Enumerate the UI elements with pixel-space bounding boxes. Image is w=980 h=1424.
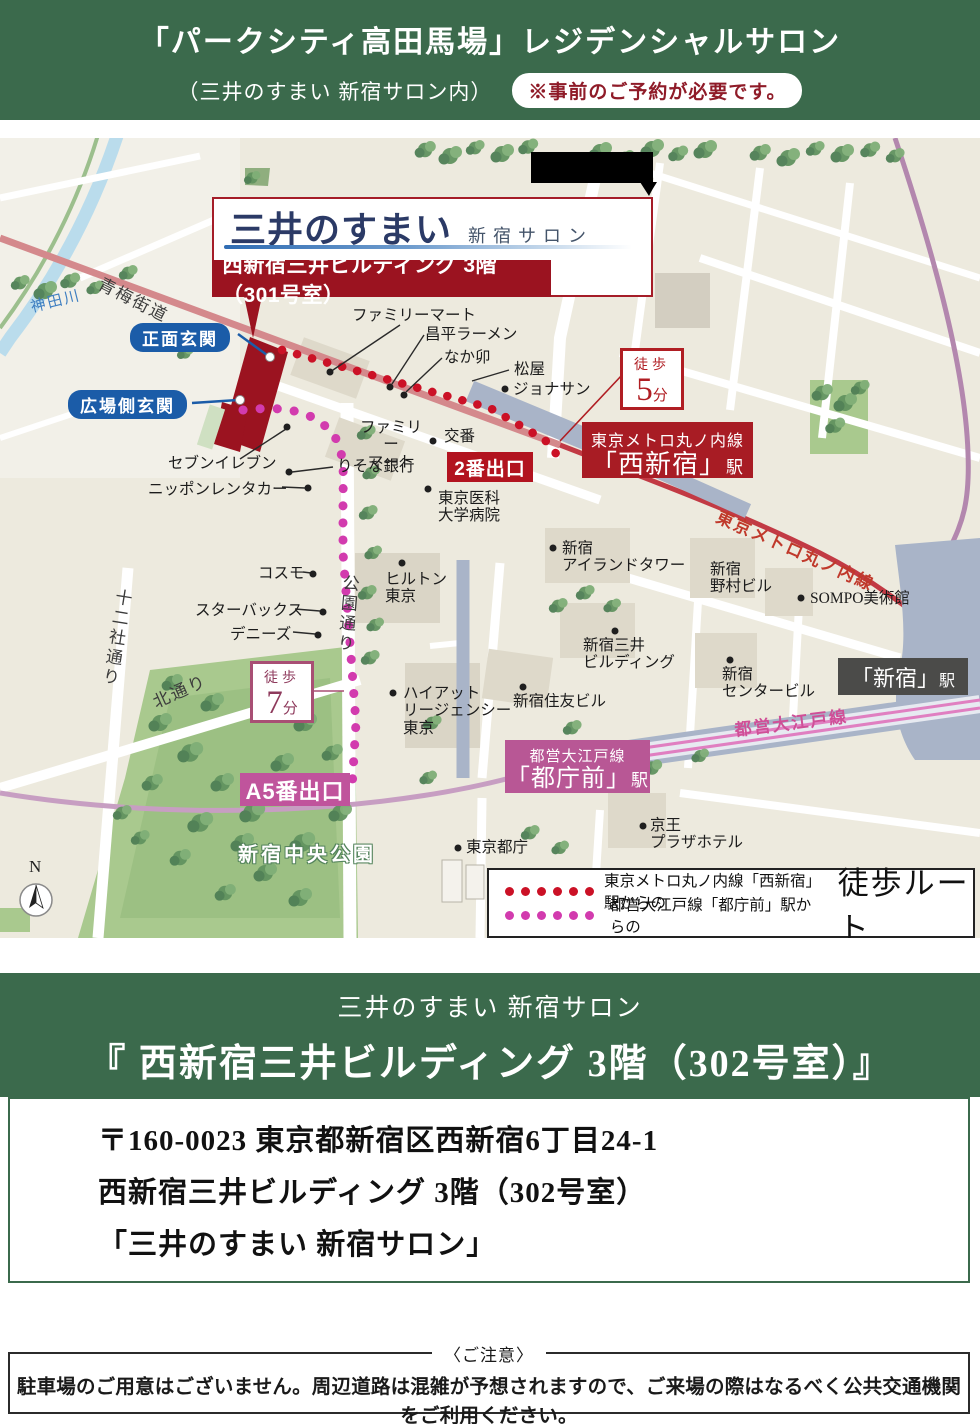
map-label-sumitomo-bldg: 新宿住友ビル: [513, 693, 606, 710]
exit-2-badge: 2番出口: [447, 452, 533, 482]
address-box: 〒160-0023 東京都新宿区西新宿6丁目24-1 西新宿三井ビルディング 3…: [8, 1097, 970, 1283]
map-label-tokyo-medical-univ-hospital: 東京医科 大学病院: [438, 490, 500, 525]
map-label-risona-bank: りそな銀行: [337, 458, 415, 475]
map-label-matsuya: 松屋: [514, 361, 545, 378]
map-label-shohei-ramen: 昌平ラーメン: [425, 326, 517, 343]
map-label-koban: 交番: [444, 428, 475, 445]
map-label-familymart-1: ファミリーマート: [352, 307, 476, 324]
legend-title: 徒歩ルート: [838, 858, 973, 938]
address-line-2: 西新宿三井ビルディング 3階（302号室）: [98, 1167, 968, 1219]
salon-name-line: 三井のすまい 新宿サロン: [0, 973, 980, 1024]
map-label-mitsui-bldg: 新宿三井 ビルディング: [583, 637, 675, 672]
map-label-jonathan: ジョナサン: [513, 381, 591, 398]
page-subtitle: （三井のすまい 新宿サロン内）: [178, 76, 493, 106]
map-label-center-bldg: 新宿 センタービル: [722, 666, 815, 701]
map-label-dennys: デニーズ: [230, 626, 291, 643]
nishi-shinjuku-station-banner: 東京メトロ丸ノ内線 「西新宿」駅: [582, 422, 753, 478]
map-label-nippon-rentacar: ニッポンレンタカー: [148, 481, 288, 498]
address-line-3: 「三井のすまい 新宿サロン」: [98, 1219, 968, 1271]
front-entrance-pill: 正面玄関: [130, 323, 230, 352]
header: 「パークシティ高田馬場」レジデンシャルサロン （三井のすまい 新宿サロン内） ※…: [0, 0, 980, 120]
map-label-hyatt-regency-tokyo: ハイアット リージェンシー 東京: [403, 685, 511, 737]
map-label-tokyo-met-gov: 東京都庁: [466, 839, 528, 856]
notice-title: 〈ご注意〉: [432, 1341, 546, 1366]
salon-building-line: 『 西新宿三井ビルディング 3階（302号室）』: [0, 1032, 980, 1087]
map-label-seven-eleven: セブンイレブン: [168, 455, 277, 472]
redacted-label: [531, 152, 653, 183]
walk-7min-badge: 徒歩 7分: [250, 661, 314, 723]
central-park-label: 新宿中央公園: [238, 838, 376, 867]
plaza-entrance-pill: 広場側玄関: [68, 390, 187, 419]
map-label-cosmo: コスモ: [258, 565, 305, 582]
shinjuku-station-banner: 「新宿」駅: [838, 658, 968, 695]
reservation-badge: ※事前のご予約が必要です。: [512, 73, 802, 108]
notice-body: 駐車場のご用意はございません。周辺道路は混雑が予想されますので、ご来場の際はなる…: [10, 1370, 968, 1424]
compass-icon: [20, 884, 52, 916]
page-title: 「パークシティ高田馬場」レジデンシャルサロン: [0, 0, 980, 61]
map-label-sompo-museum: SOMPO美術館: [810, 590, 910, 607]
building-banner: 西新宿三井ビルディング 3階（301号室）: [212, 260, 551, 297]
pink-route-dots-icon: [505, 911, 600, 920]
salon-callout: 三井のすまい 新宿サロン 西新宿三井ビルディング 3階（301号室）: [212, 197, 653, 297]
notice-box: 〈ご注意〉 駐車場のご用意はございません。周辺道路は混雑が予想されますので、ご来…: [8, 1352, 970, 1414]
map-label-keio-plaza-hotel: 京王 プラザホテル: [650, 817, 743, 852]
map-label-hilton-tokyo: ヒルトン 東京: [385, 571, 447, 606]
address-line-1: 〒160-0023 東京都新宿区西新宿6丁目24-1: [98, 1115, 968, 1167]
legend-pink-route-text: 都営大江戸線「都庁前」駅からの: [610, 893, 826, 937]
access-map-flyer: 「パークシティ高田馬場」レジデンシャルサロン （三井のすまい 新宿サロン内） ※…: [0, 0, 980, 1424]
map-label-shinjuku-island-tower: 新宿 アイランドタワー: [562, 540, 685, 575]
tochomae-station-banner: 都営大江戸線 「都庁前」駅: [505, 740, 650, 793]
exit-a5-badge: A5番出口: [240, 773, 350, 806]
walk-5min-badge: 徒歩 5分: [620, 348, 684, 410]
map-label-nomura-bldg: 新宿 野村ビル: [710, 561, 772, 596]
red-route-dots-icon: [505, 887, 594, 896]
map-label-nakau: なか卯: [444, 349, 491, 366]
salon-info-band: 三井のすまい 新宿サロン 『 西新宿三井ビルディング 3階（302号室）』: [0, 973, 980, 1097]
route-legend: 東京メトロ丸ノ内線「西新宿」駅からの 都営大江戸線「都庁前」駅からの 徒歩ルート: [487, 868, 975, 938]
area-map: 三井のすまい 新宿サロン 西新宿三井ビルディング 3階（301号室） 正面玄関 …: [0, 138, 980, 938]
map-label-starbucks: スターバックス: [195, 602, 303, 619]
compass-n-label: N: [29, 857, 41, 877]
